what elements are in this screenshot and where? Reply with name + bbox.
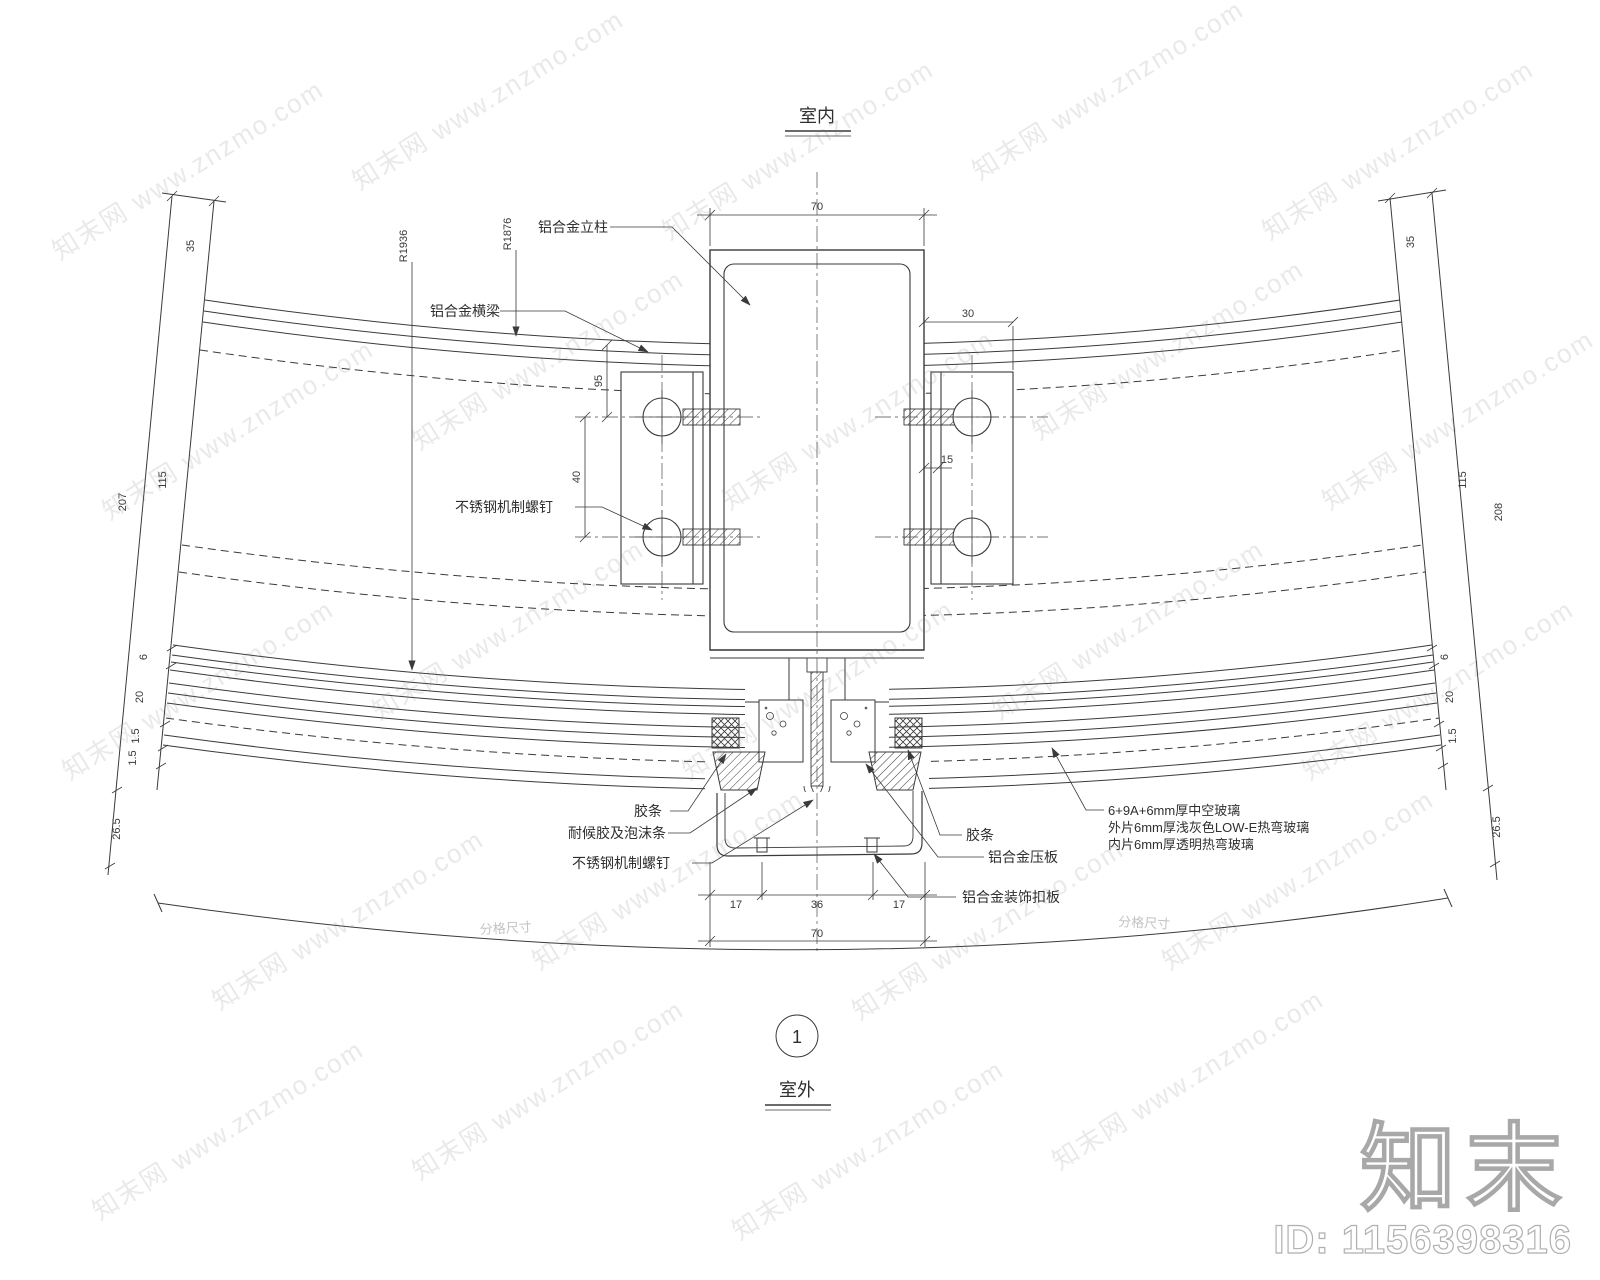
machine-screw-lower-label: 不锈钢机制螺钉 xyxy=(572,855,670,871)
dim-right-outer: 208 xyxy=(1493,503,1505,521)
gasket-right-label: 胶条 xyxy=(966,827,994,843)
grid-note-left: 分格尺寸 xyxy=(479,919,532,937)
dim-left-inner: 115 xyxy=(157,471,169,489)
dim-cover-total: 70 xyxy=(811,928,823,940)
dim-right-inner: 115 xyxy=(1457,471,1469,489)
weather-seal-label: 耐候胶及泡沫条 xyxy=(568,825,666,841)
outdoor-title: 室外 xyxy=(779,1080,815,1100)
dim-left-20: 20 xyxy=(134,691,146,703)
grid-note-right: 分格尺寸 xyxy=(1118,914,1171,932)
indoor-title: 室内 xyxy=(799,106,835,126)
dim-right-20: 20 xyxy=(1444,691,1456,703)
dim-edge-gap: 15 xyxy=(941,454,953,466)
dim-mullion-width: 70 xyxy=(811,201,823,213)
dim-left-6: 6 xyxy=(138,654,150,660)
mullion-label: 铝合金立柱 xyxy=(538,219,608,235)
dim-top-edge-right: 35 xyxy=(1405,236,1417,248)
radius-texts: R1876 R1936 xyxy=(398,218,514,262)
dim-left-outer: 207 xyxy=(117,493,129,511)
dim-left-265: 26.5 xyxy=(111,818,123,839)
dim-bolt-spacing: 40 xyxy=(571,471,583,483)
dim-right-6: 6 xyxy=(1439,654,1451,660)
dim-right-15: 1.5 xyxy=(1447,728,1459,743)
dim-right-265: 26.5 xyxy=(1491,816,1503,837)
title-outdoor-group: 室外 xyxy=(765,1080,831,1110)
radius-glass: R1936 xyxy=(398,230,410,262)
gasket-left-label: 胶条 xyxy=(634,803,662,819)
dim-cover-right: 17 xyxy=(893,899,905,911)
machine-screw-upper-label: 不锈钢机制螺钉 xyxy=(455,499,553,515)
title-indoor-group: 室内 xyxy=(785,106,851,136)
glass-spec-line1: 6+9A+6mm厚中空玻璃 xyxy=(1108,803,1240,818)
cover-plate-label: 铝合金装饰扣板 xyxy=(962,889,1060,905)
radius-outer-frame: R1876 xyxy=(502,218,514,250)
curtain-wall-detail-svg: 室内 1 室外 铝合金立柱 铝合金横梁 不锈钢机制螺钉 胶条 耐候胶及泡沫条 不… xyxy=(0,0,1600,1280)
dim-cover-mid: 36 xyxy=(811,899,823,911)
section-bubble: 1 xyxy=(776,1015,818,1057)
dim-top-edge-left: 35 xyxy=(185,240,197,252)
dim-left-15a: 1.5 xyxy=(130,728,142,743)
pressure-plate-label: 铝合金压板 xyxy=(988,849,1058,865)
dim-cover-left: 17 xyxy=(730,899,742,911)
cover-plate xyxy=(717,791,922,856)
dim-bracket-top: 95 xyxy=(593,375,605,387)
glass-spec-line3: 内片6mm厚透明热弯玻璃 xyxy=(1108,837,1254,852)
section-number: 1 xyxy=(792,1027,802,1047)
dim-left-15b: 1.5 xyxy=(127,750,139,765)
cad-drawing-sheet: 室内 1 室外 铝合金立柱 铝合金横梁 不锈钢机制螺钉 胶条 耐候胶及泡沫条 不… xyxy=(0,0,1600,1280)
dim-bracket-offset: 30 xyxy=(962,308,974,320)
glass-spec-line2: 外片6mm厚浅灰色LOW-E热弯玻璃 xyxy=(1108,820,1309,835)
transom-label: 铝合金横梁 xyxy=(430,303,500,319)
